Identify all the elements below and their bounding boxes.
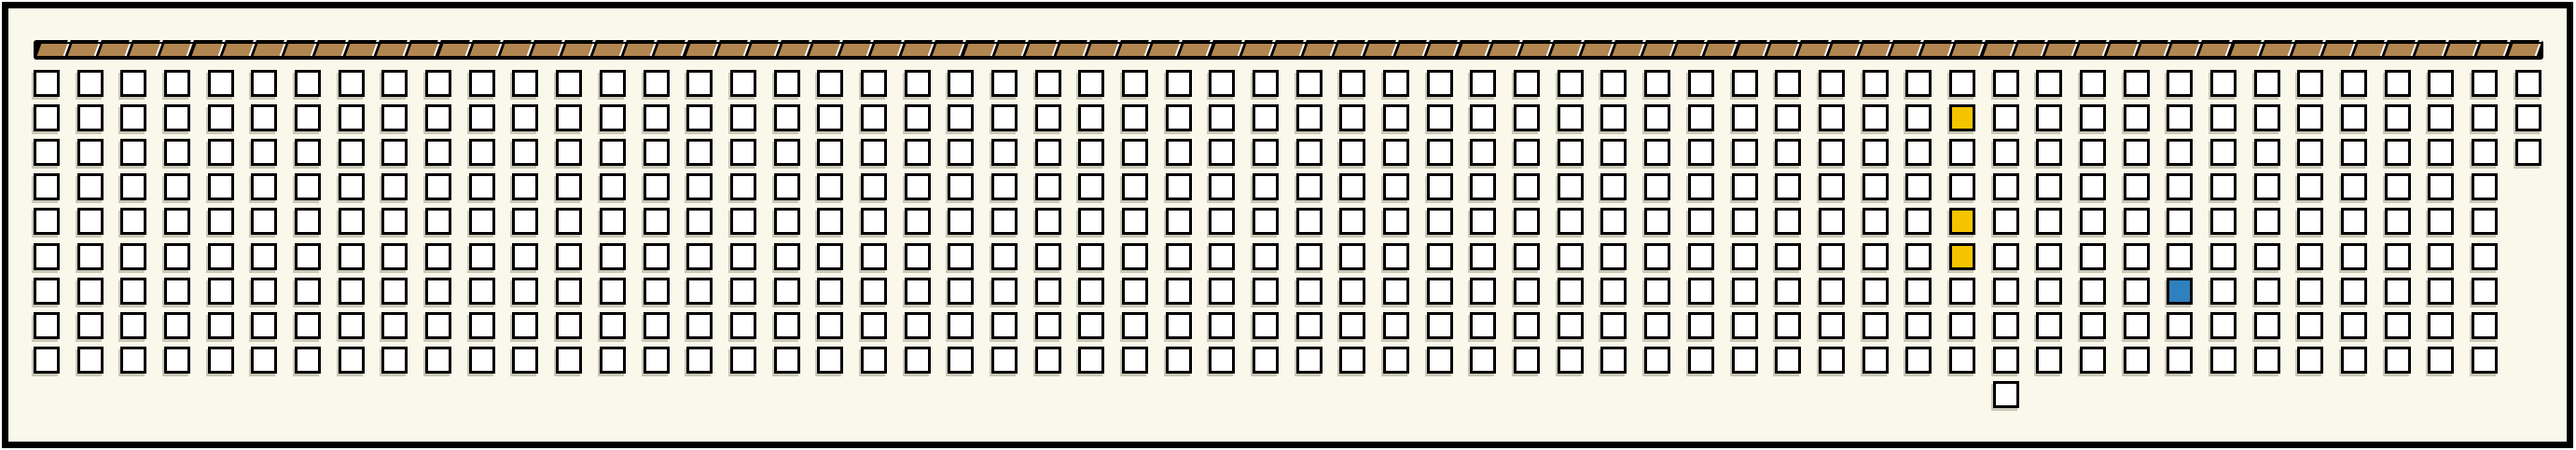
seat-cell[interactable] bbox=[817, 243, 843, 270]
seat-cell[interactable] bbox=[251, 278, 277, 305]
seat-cell[interactable] bbox=[512, 243, 538, 270]
seat-cell[interactable] bbox=[120, 312, 146, 339]
seat-cell[interactable] bbox=[2341, 104, 2367, 131]
seat-cell[interactable] bbox=[2036, 139, 2062, 166]
seat-cell[interactable] bbox=[2210, 347, 2237, 374]
seat-cell[interactable] bbox=[251, 173, 277, 200]
seat-cell[interactable] bbox=[774, 208, 800, 235]
seat-cell[interactable] bbox=[34, 312, 60, 339]
seat-cell[interactable] bbox=[1514, 104, 1540, 131]
seat-cell[interactable] bbox=[425, 278, 451, 305]
seat-cell[interactable] bbox=[1078, 347, 1104, 374]
seat-cell[interactable] bbox=[991, 347, 1018, 374]
seat-cell[interactable] bbox=[2036, 104, 2062, 131]
seat-cell[interactable] bbox=[1253, 173, 1279, 200]
seat-cell[interactable] bbox=[208, 312, 234, 339]
seat-cell[interactable] bbox=[2297, 347, 2323, 374]
seat-cell[interactable] bbox=[2080, 312, 2106, 339]
seat-cell[interactable] bbox=[2385, 139, 2411, 166]
seat-cell[interactable] bbox=[1732, 347, 1758, 374]
seat-cell[interactable] bbox=[948, 208, 974, 235]
seat-cell[interactable] bbox=[2428, 139, 2454, 166]
seat-cell[interactable] bbox=[1905, 347, 1932, 374]
seat-cell[interactable] bbox=[164, 278, 190, 305]
seat-cell[interactable] bbox=[600, 139, 626, 166]
seat-cell[interactable] bbox=[425, 347, 451, 374]
seat-cell[interactable] bbox=[1688, 173, 1714, 200]
seat-cell[interactable] bbox=[77, 208, 104, 235]
seat-cell[interactable] bbox=[1209, 70, 1235, 97]
seat-cell[interactable] bbox=[1863, 139, 1889, 166]
seat-cell[interactable] bbox=[1166, 70, 1192, 97]
seat-cell[interactable] bbox=[2124, 208, 2150, 235]
seat-cell[interactable] bbox=[1600, 347, 1627, 374]
seat-cell[interactable] bbox=[1383, 243, 1409, 270]
seat-cell[interactable] bbox=[817, 208, 843, 235]
seat-cell[interactable] bbox=[34, 243, 60, 270]
seat-cell[interactable] bbox=[1775, 70, 1801, 97]
seat-cell[interactable] bbox=[251, 104, 277, 131]
seat-cell[interactable] bbox=[77, 139, 104, 166]
seat-cell[interactable] bbox=[1600, 104, 1627, 131]
seat-cell[interactable] bbox=[1427, 243, 1453, 270]
seat-cell[interactable] bbox=[1993, 208, 2019, 235]
seat-cell[interactable] bbox=[1688, 312, 1714, 339]
seat-cell[interactable] bbox=[2428, 243, 2454, 270]
seat-cell[interactable] bbox=[1993, 347, 2019, 374]
seat-cell[interactable] bbox=[295, 347, 321, 374]
seat-cell[interactable] bbox=[2124, 347, 2150, 374]
seat-cell[interactable] bbox=[2036, 347, 2062, 374]
seat-cell[interactable] bbox=[1470, 139, 1496, 166]
seat-cell[interactable] bbox=[1863, 243, 1889, 270]
seat-cell[interactable] bbox=[861, 312, 887, 339]
seat-cell[interactable] bbox=[644, 243, 670, 270]
seat-cell[interactable] bbox=[512, 312, 538, 339]
seat-cell[interactable] bbox=[208, 104, 234, 131]
seat-cell[interactable] bbox=[1166, 139, 1192, 166]
seat-cell[interactable] bbox=[1775, 208, 1801, 235]
seat-cell[interactable] bbox=[556, 173, 582, 200]
seat-cell[interactable] bbox=[991, 312, 1018, 339]
seat-cell[interactable] bbox=[1558, 312, 1584, 339]
seat-cell[interactable] bbox=[1600, 208, 1627, 235]
seat-cell[interactable] bbox=[2297, 208, 2323, 235]
seat-cell[interactable] bbox=[730, 312, 756, 339]
seat-cell[interactable] bbox=[381, 104, 408, 131]
seat-cell[interactable] bbox=[34, 208, 60, 235]
seat-cell[interactable] bbox=[77, 104, 104, 131]
seat-cell[interactable] bbox=[339, 278, 365, 305]
seat-cell[interactable] bbox=[600, 347, 626, 374]
seat-cell[interactable] bbox=[1775, 104, 1801, 131]
seat-cell[interactable] bbox=[512, 278, 538, 305]
seat-cell[interactable] bbox=[1339, 243, 1365, 270]
seat-cell[interactable] bbox=[1600, 312, 1627, 339]
seat-cell[interactable] bbox=[774, 70, 800, 97]
seat-cell[interactable] bbox=[2124, 70, 2150, 97]
seat-cell[interactable] bbox=[1688, 139, 1714, 166]
seat-cell[interactable] bbox=[817, 278, 843, 305]
seat-cell[interactable] bbox=[381, 312, 408, 339]
seat-cell[interactable] bbox=[948, 173, 974, 200]
seat-cell[interactable] bbox=[1819, 104, 1845, 131]
seat-cell[interactable] bbox=[1514, 243, 1540, 270]
seat-cell[interactable] bbox=[730, 104, 756, 131]
seat-cell[interactable] bbox=[512, 347, 538, 374]
seat-cell[interactable] bbox=[1383, 347, 1409, 374]
seat-cell[interactable] bbox=[208, 243, 234, 270]
seat-cell[interactable] bbox=[1166, 243, 1192, 270]
seat-cell[interactable] bbox=[774, 312, 800, 339]
seat-cell[interactable] bbox=[991, 70, 1018, 97]
seat-cell[interactable] bbox=[469, 312, 495, 339]
seat-cell[interactable] bbox=[381, 278, 408, 305]
seat-cell-selected-blue[interactable] bbox=[2167, 278, 2193, 305]
seat-cell[interactable] bbox=[2254, 243, 2280, 270]
seat-cell[interactable] bbox=[34, 347, 60, 374]
seat-cell[interactable] bbox=[2124, 243, 2150, 270]
seat-cell[interactable] bbox=[295, 70, 321, 97]
seat-cell[interactable] bbox=[251, 312, 277, 339]
seat-cell[interactable] bbox=[1863, 208, 1889, 235]
seat-cell[interactable] bbox=[1078, 139, 1104, 166]
seat-cell[interactable] bbox=[251, 243, 277, 270]
seat-cell[interactable] bbox=[2080, 104, 2106, 131]
seat-cell[interactable] bbox=[1035, 139, 1061, 166]
seat-cell[interactable] bbox=[2036, 208, 2062, 235]
seat-cell[interactable] bbox=[1688, 70, 1714, 97]
seat-cell[interactable] bbox=[2210, 208, 2237, 235]
seat-cell[interactable] bbox=[1122, 208, 1148, 235]
seat-cell[interactable] bbox=[1209, 312, 1235, 339]
seat-cell[interactable] bbox=[381, 173, 408, 200]
seat-cell[interactable] bbox=[644, 139, 670, 166]
seat-cell[interactable] bbox=[512, 70, 538, 97]
seat-cell[interactable] bbox=[686, 104, 713, 131]
seat-cell[interactable] bbox=[1993, 381, 2019, 408]
seat-cell[interactable] bbox=[2254, 139, 2280, 166]
seat-cell[interactable] bbox=[1078, 243, 1104, 270]
seat-cell[interactable] bbox=[1427, 139, 1453, 166]
seat-cell[interactable] bbox=[120, 70, 146, 97]
seat-cell[interactable] bbox=[905, 243, 931, 270]
seat-cell[interactable] bbox=[948, 70, 974, 97]
seat-cell[interactable] bbox=[1470, 347, 1496, 374]
seat-cell[interactable] bbox=[2472, 278, 2498, 305]
seat-cell[interactable] bbox=[2036, 278, 2062, 305]
seat-cell[interactable] bbox=[2080, 278, 2106, 305]
seat-cell[interactable] bbox=[425, 70, 451, 97]
seat-cell[interactable] bbox=[861, 173, 887, 200]
seat-cell[interactable] bbox=[251, 208, 277, 235]
seat-cell[interactable] bbox=[686, 347, 713, 374]
seat-cell[interactable] bbox=[1427, 104, 1453, 131]
seat-cell[interactable] bbox=[2472, 139, 2498, 166]
seat-cell[interactable] bbox=[339, 70, 365, 97]
seat-cell[interactable] bbox=[2254, 104, 2280, 131]
seat-cell[interactable] bbox=[295, 312, 321, 339]
seat-cell[interactable] bbox=[2080, 208, 2106, 235]
seat-cell[interactable] bbox=[1644, 312, 1670, 339]
seat-cell[interactable] bbox=[1470, 173, 1496, 200]
seat-cell[interactable] bbox=[34, 139, 60, 166]
seat-cell[interactable] bbox=[469, 173, 495, 200]
seat-cell[interactable] bbox=[2385, 278, 2411, 305]
seat-cell[interactable] bbox=[686, 70, 713, 97]
seat-cell[interactable] bbox=[469, 70, 495, 97]
seat-cell[interactable] bbox=[1993, 278, 2019, 305]
seat-cell[interactable] bbox=[1383, 208, 1409, 235]
seat-cell[interactable] bbox=[425, 173, 451, 200]
seat-cell[interactable] bbox=[1905, 139, 1932, 166]
seat-cell[interactable] bbox=[1253, 312, 1279, 339]
seat-cell[interactable] bbox=[208, 139, 234, 166]
seat-cell[interactable] bbox=[1339, 347, 1365, 374]
seat-cell[interactable] bbox=[1209, 243, 1235, 270]
seat-cell[interactable] bbox=[1775, 347, 1801, 374]
seat-cell[interactable] bbox=[77, 173, 104, 200]
seat-cell[interactable] bbox=[1209, 173, 1235, 200]
seat-cell[interactable] bbox=[1339, 173, 1365, 200]
seat-cell[interactable] bbox=[644, 70, 670, 97]
seat-cell[interactable] bbox=[2385, 70, 2411, 97]
seat-cell[interactable] bbox=[2428, 278, 2454, 305]
seat-cell[interactable] bbox=[1078, 173, 1104, 200]
seat-cell[interactable] bbox=[1905, 173, 1932, 200]
seat-cell[interactable] bbox=[2080, 70, 2106, 97]
seat-cell[interactable] bbox=[774, 243, 800, 270]
seat-cell[interactable] bbox=[1905, 208, 1932, 235]
seat-cell[interactable] bbox=[2167, 243, 2193, 270]
seat-cell[interactable] bbox=[251, 70, 277, 97]
seat-cell[interactable] bbox=[1688, 208, 1714, 235]
seat-cell[interactable] bbox=[34, 173, 60, 200]
seat-cell[interactable] bbox=[1035, 173, 1061, 200]
seat-cell[interactable] bbox=[2341, 208, 2367, 235]
seat-cell[interactable] bbox=[1514, 312, 1540, 339]
seat-cell[interactable] bbox=[730, 347, 756, 374]
seat-cell[interactable] bbox=[905, 278, 931, 305]
seat-cell[interactable] bbox=[1558, 173, 1584, 200]
seat-cell[interactable] bbox=[1819, 70, 1845, 97]
seat-cell[interactable] bbox=[512, 173, 538, 200]
seat-cell[interactable] bbox=[164, 139, 190, 166]
seat-cell[interactable] bbox=[2036, 312, 2062, 339]
seat-cell[interactable] bbox=[425, 208, 451, 235]
seat-cell[interactable] bbox=[686, 208, 713, 235]
seat-cell[interactable] bbox=[1732, 208, 1758, 235]
seat-cell[interactable] bbox=[164, 347, 190, 374]
seat-cell[interactable] bbox=[164, 243, 190, 270]
seat-cell[interactable] bbox=[339, 243, 365, 270]
seat-cell[interactable] bbox=[208, 173, 234, 200]
seat-cell[interactable] bbox=[1644, 347, 1670, 374]
seat-cell[interactable] bbox=[1993, 104, 2019, 131]
seat-cell[interactable] bbox=[1296, 139, 1323, 166]
seat-cell[interactable] bbox=[2385, 208, 2411, 235]
seat-cell[interactable] bbox=[1514, 278, 1540, 305]
seat-cell[interactable] bbox=[1296, 278, 1323, 305]
seat-cell[interactable] bbox=[686, 278, 713, 305]
seat-cell[interactable] bbox=[600, 173, 626, 200]
seat-cell[interactable] bbox=[556, 104, 582, 131]
seat-cell[interactable] bbox=[1253, 70, 1279, 97]
seat-cell[interactable] bbox=[1427, 70, 1453, 97]
seat-cell[interactable] bbox=[1732, 104, 1758, 131]
seat-cell[interactable] bbox=[1819, 173, 1845, 200]
seat-cell[interactable] bbox=[556, 139, 582, 166]
seat-cell[interactable] bbox=[1905, 70, 1932, 97]
seat-cell[interactable] bbox=[2341, 173, 2367, 200]
seat-cell[interactable] bbox=[34, 278, 60, 305]
seat-cell[interactable] bbox=[1732, 70, 1758, 97]
seat-cell[interactable] bbox=[2210, 173, 2237, 200]
seat-cell[interactable] bbox=[120, 278, 146, 305]
seat-cell[interactable] bbox=[948, 347, 974, 374]
seat-cell[interactable] bbox=[1863, 104, 1889, 131]
seat-cell[interactable] bbox=[1339, 139, 1365, 166]
seat-cell[interactable] bbox=[1166, 312, 1192, 339]
seat-cell[interactable] bbox=[1209, 347, 1235, 374]
seat-cell[interactable] bbox=[600, 104, 626, 131]
seat-cell[interactable] bbox=[774, 173, 800, 200]
seat-cell[interactable] bbox=[381, 243, 408, 270]
seat-cell[interactable] bbox=[2124, 278, 2150, 305]
seat-cell-selected-yellow[interactable] bbox=[1949, 243, 1975, 270]
seat-cell[interactable] bbox=[1863, 278, 1889, 305]
seat-cell[interactable] bbox=[1688, 278, 1714, 305]
seat-cell[interactable] bbox=[1732, 278, 1758, 305]
seat-cell[interactable] bbox=[1949, 312, 1975, 339]
seat-cell[interactable] bbox=[1296, 243, 1323, 270]
seat-cell[interactable] bbox=[2297, 70, 2323, 97]
seat-cell[interactable] bbox=[2472, 104, 2498, 131]
seat-cell[interactable] bbox=[1166, 278, 1192, 305]
seat-cell[interactable] bbox=[1905, 243, 1932, 270]
seat-cell[interactable] bbox=[2167, 208, 2193, 235]
seat-cell[interactable] bbox=[2385, 173, 2411, 200]
seat-cell[interactable] bbox=[1644, 278, 1670, 305]
seat-cell[interactable] bbox=[1383, 278, 1409, 305]
seat-cell[interactable] bbox=[1732, 139, 1758, 166]
seat-cell[interactable] bbox=[686, 312, 713, 339]
seat-cell[interactable] bbox=[948, 312, 974, 339]
seat-cell[interactable] bbox=[1383, 104, 1409, 131]
seat-cell[interactable] bbox=[1775, 139, 1801, 166]
seat-cell[interactable] bbox=[600, 243, 626, 270]
seat-cell[interactable] bbox=[2385, 243, 2411, 270]
seat-cell[interactable] bbox=[2385, 104, 2411, 131]
seat-cell[interactable] bbox=[1166, 347, 1192, 374]
seat-cell[interactable] bbox=[1470, 278, 1496, 305]
seat-cell[interactable] bbox=[1253, 243, 1279, 270]
seat-cell[interactable] bbox=[2428, 104, 2454, 131]
seat-cell[interactable] bbox=[730, 243, 756, 270]
seat-cell[interactable] bbox=[1122, 312, 1148, 339]
seat-cell[interactable] bbox=[1993, 243, 2019, 270]
seat-cell[interactable] bbox=[2080, 347, 2106, 374]
seat-cell[interactable] bbox=[1470, 104, 1496, 131]
seat-cell[interactable] bbox=[1644, 208, 1670, 235]
seat-cell[interactable] bbox=[1035, 243, 1061, 270]
seat-cell[interactable] bbox=[295, 278, 321, 305]
seat-cell[interactable] bbox=[1775, 243, 1801, 270]
seat-cell[interactable] bbox=[425, 139, 451, 166]
seat-cell[interactable] bbox=[644, 208, 670, 235]
seat-cell[interactable] bbox=[77, 312, 104, 339]
seat-cell[interactable] bbox=[556, 312, 582, 339]
seat-cell[interactable] bbox=[1122, 70, 1148, 97]
seat-cell[interactable] bbox=[1863, 173, 1889, 200]
seat-cell[interactable] bbox=[644, 347, 670, 374]
seat-cell[interactable] bbox=[1078, 104, 1104, 131]
seat-cell[interactable] bbox=[1819, 312, 1845, 339]
seat-cell[interactable] bbox=[1993, 173, 2019, 200]
seat-cell[interactable] bbox=[469, 208, 495, 235]
seat-cell[interactable] bbox=[1949, 278, 1975, 305]
seat-cell[interactable] bbox=[1819, 347, 1845, 374]
seat-cell[interactable] bbox=[1905, 104, 1932, 131]
seat-cell[interactable] bbox=[1688, 347, 1714, 374]
seat-cell[interactable] bbox=[1339, 278, 1365, 305]
seat-cell[interactable] bbox=[1296, 104, 1323, 131]
seat-cell[interactable] bbox=[512, 208, 538, 235]
seat-cell[interactable] bbox=[164, 104, 190, 131]
seat-cell[interactable] bbox=[2515, 104, 2541, 131]
seat-cell[interactable] bbox=[1688, 243, 1714, 270]
seat-cell[interactable] bbox=[1383, 70, 1409, 97]
seat-cell[interactable] bbox=[600, 312, 626, 339]
seat-cell[interactable] bbox=[2167, 139, 2193, 166]
seat-cell[interactable] bbox=[2515, 139, 2541, 166]
seat-cell[interactable] bbox=[905, 139, 931, 166]
seat-cell[interactable] bbox=[1078, 70, 1104, 97]
seat-cell[interactable] bbox=[2254, 347, 2280, 374]
seat-cell[interactable] bbox=[2515, 70, 2541, 97]
seat-cell[interactable] bbox=[2428, 347, 2454, 374]
seat-cell[interactable] bbox=[2210, 104, 2237, 131]
seat-cell[interactable] bbox=[1122, 243, 1148, 270]
seat-cell[interactable] bbox=[1863, 347, 1889, 374]
seat-cell[interactable] bbox=[1732, 173, 1758, 200]
seat-cell[interactable] bbox=[2297, 312, 2323, 339]
seat-cell[interactable] bbox=[469, 243, 495, 270]
seat-cell[interactable] bbox=[905, 104, 931, 131]
seat-cell[interactable] bbox=[1600, 243, 1627, 270]
seat-cell[interactable] bbox=[425, 312, 451, 339]
seat-cell[interactable] bbox=[1905, 278, 1932, 305]
seat-cell[interactable] bbox=[2428, 173, 2454, 200]
seat-cell[interactable] bbox=[1514, 70, 1540, 97]
seat-cell[interactable] bbox=[1558, 347, 1584, 374]
seat-cell[interactable] bbox=[2167, 173, 2193, 200]
seat-cell[interactable] bbox=[295, 173, 321, 200]
seat-cell[interactable] bbox=[948, 104, 974, 131]
seat-cell[interactable] bbox=[1819, 278, 1845, 305]
seat-cell[interactable] bbox=[1558, 104, 1584, 131]
seat-cell[interactable] bbox=[2341, 139, 2367, 166]
seat-cell[interactable] bbox=[2472, 347, 2498, 374]
seat-cell[interactable] bbox=[2472, 243, 2498, 270]
seat-cell[interactable] bbox=[1819, 208, 1845, 235]
seat-cell[interactable] bbox=[295, 243, 321, 270]
seat-cell[interactable] bbox=[381, 208, 408, 235]
seat-cell[interactable] bbox=[251, 347, 277, 374]
seat-cell[interactable] bbox=[2210, 278, 2237, 305]
seat-cell[interactable] bbox=[774, 278, 800, 305]
seat-cell[interactable] bbox=[120, 347, 146, 374]
